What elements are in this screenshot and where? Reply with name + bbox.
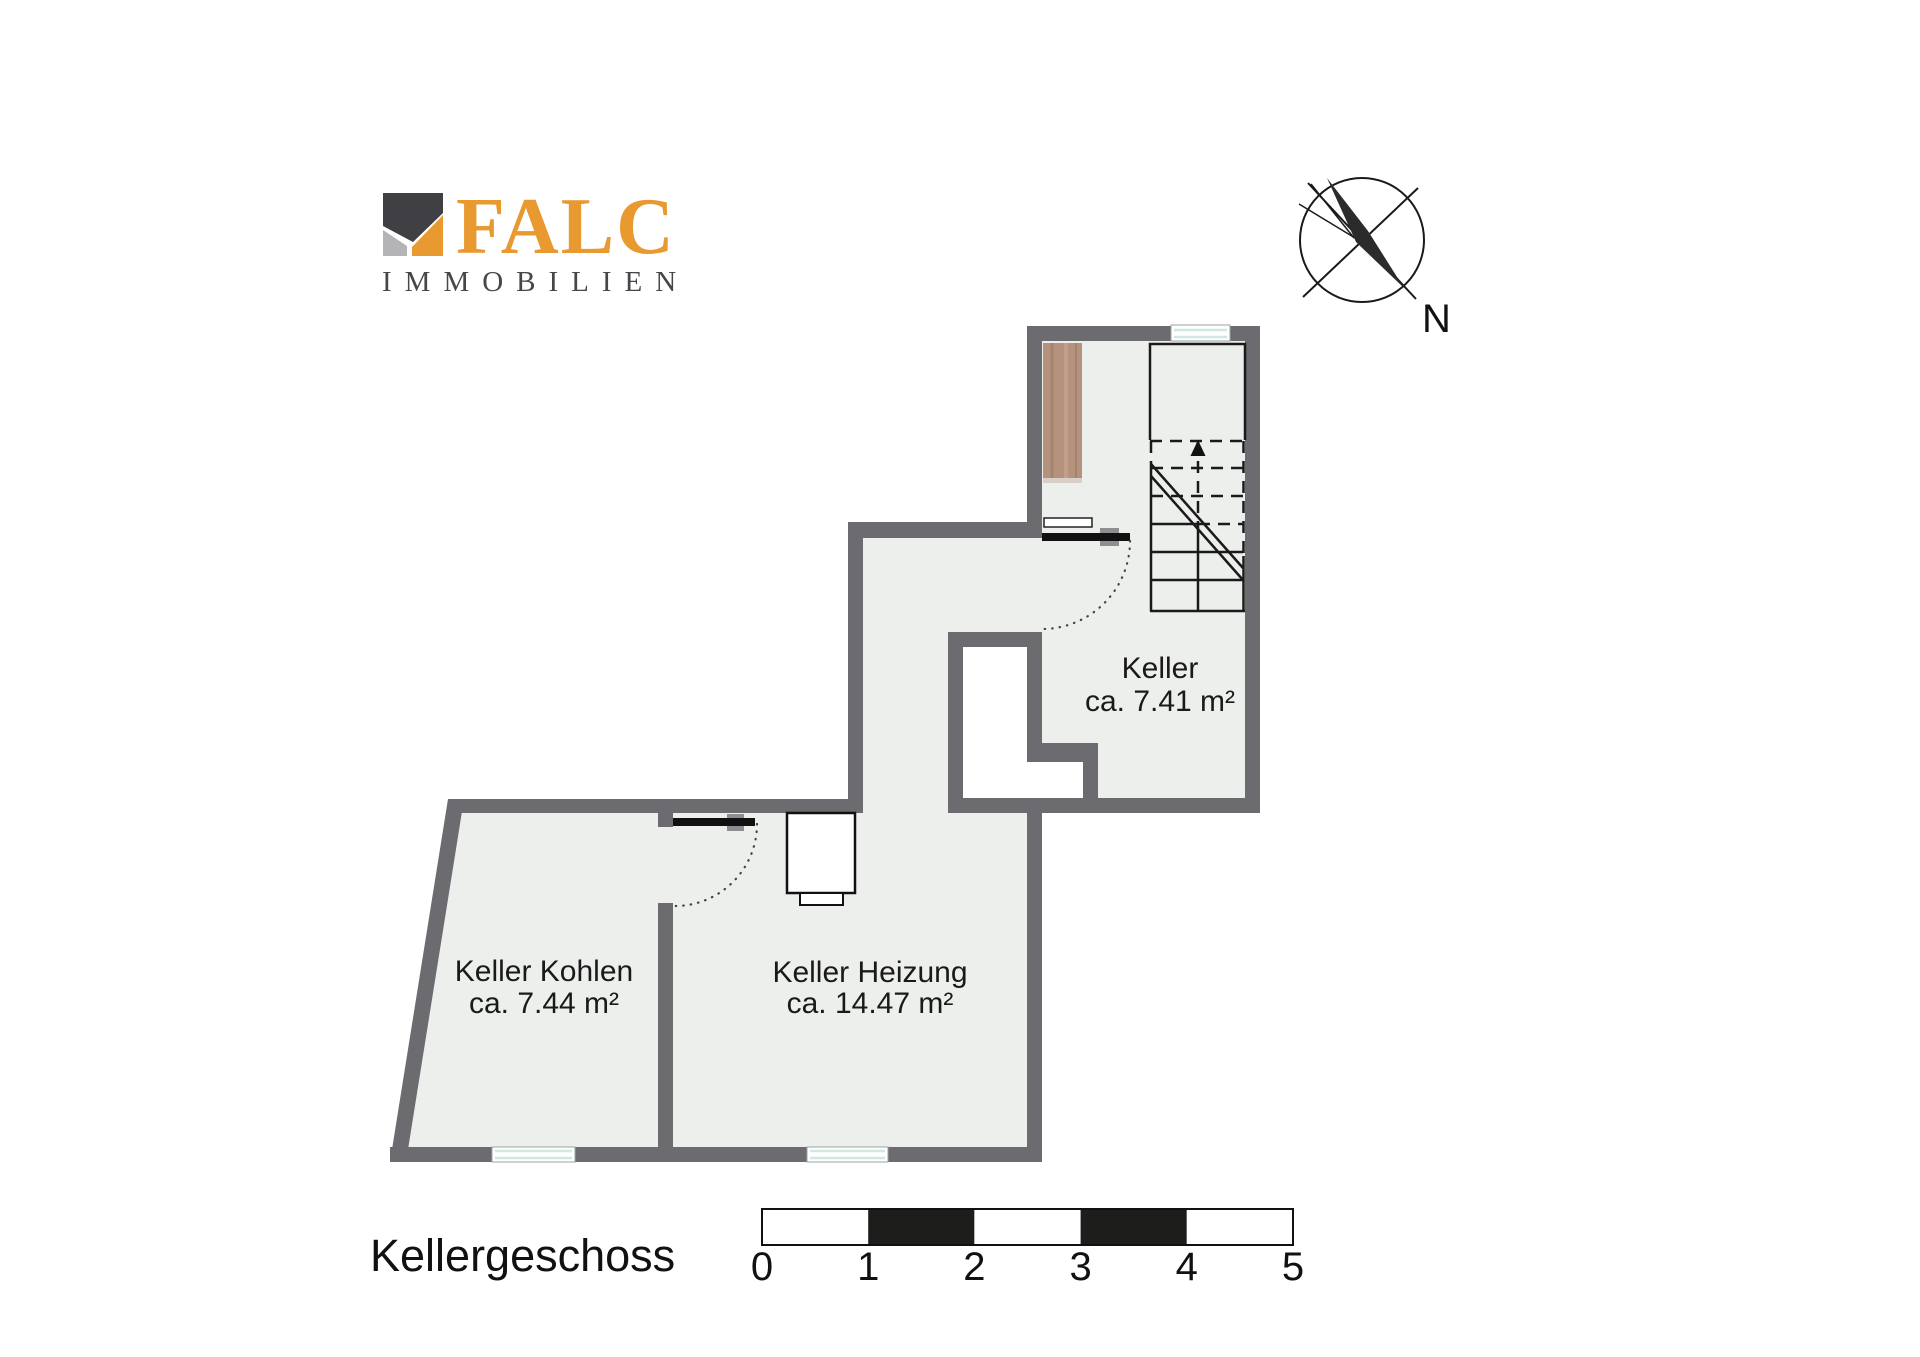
wall-keller-west [1027, 326, 1042, 538]
heater-icon [787, 813, 855, 905]
compass-needle [1327, 178, 1404, 288]
scale-bar: 0 1 2 3 4 5 [751, 1209, 1304, 1289]
wall-top-left-seg [1027, 326, 1171, 341]
room-area-heizung: ca. 14.47 m² [787, 987, 954, 1020]
wall-corridor-west [848, 522, 863, 813]
scale-tick-3: 3 [1069, 1245, 1091, 1289]
wall-south-2 [575, 1147, 807, 1162]
floor-areas [404, 341, 1245, 1147]
logo-text: FALC [456, 183, 676, 271]
wall-partition [658, 903, 673, 1147]
room-area-kohlen: ca. 7.44 m² [469, 987, 619, 1020]
scale-tick-5: 5 [1282, 1245, 1304, 1289]
falc-logo: FALC IMMOBILIEN [382, 183, 689, 298]
room-area-keller: ca. 7.41 m² [1085, 685, 1235, 718]
room-name-kohlen: Keller Kohlen [455, 955, 633, 988]
door-leaf [673, 818, 755, 826]
wall-south-1 [390, 1147, 492, 1162]
cabinet-icon [1043, 343, 1082, 483]
wall-south-3 [888, 1147, 1042, 1162]
wall-heizung-east [1027, 798, 1042, 1162]
floorplan-page: FALC IMMOBILIEN N [0, 0, 1920, 1357]
scale-tick-2: 2 [963, 1245, 985, 1289]
wall-corridor-north [848, 522, 1042, 538]
wall-lower-north [451, 799, 863, 813]
wall-partition-stub [658, 813, 673, 827]
scale-tick-4: 4 [1176, 1245, 1198, 1289]
floor-title: Kellergeschoss [370, 1230, 675, 1281]
logo-subtext: IMMOBILIEN [382, 266, 689, 298]
scale-tick-1: 1 [857, 1245, 879, 1289]
wall-keller-south [948, 798, 1260, 813]
room-name-keller: Keller [1122, 652, 1199, 685]
wall-shaft-lbar [1027, 743, 1098, 762]
compass-rose-icon [1299, 178, 1424, 302]
compass-north-label: N [1422, 297, 1451, 341]
window-icon-heizung [807, 1147, 888, 1162]
floor-corridor-gap [863, 798, 948, 813]
wall-shaft-west [948, 632, 963, 798]
wall-shaft-east [1027, 632, 1042, 743]
scale-tick-0: 0 [751, 1245, 773, 1289]
room-name-heizung: Keller Heizung [772, 956, 967, 989]
window-icon-top [1171, 325, 1230, 341]
wall-niche [1044, 518, 1092, 527]
wall-shaft-lleg [1083, 762, 1098, 798]
wall-east [1245, 326, 1260, 813]
floor-partition-doorway [658, 827, 673, 903]
floorplan-canvas: FALC IMMOBILIEN N [0, 0, 1920, 1357]
window-icon-kohlen [492, 1147, 575, 1162]
door-leaf [1042, 533, 1130, 541]
